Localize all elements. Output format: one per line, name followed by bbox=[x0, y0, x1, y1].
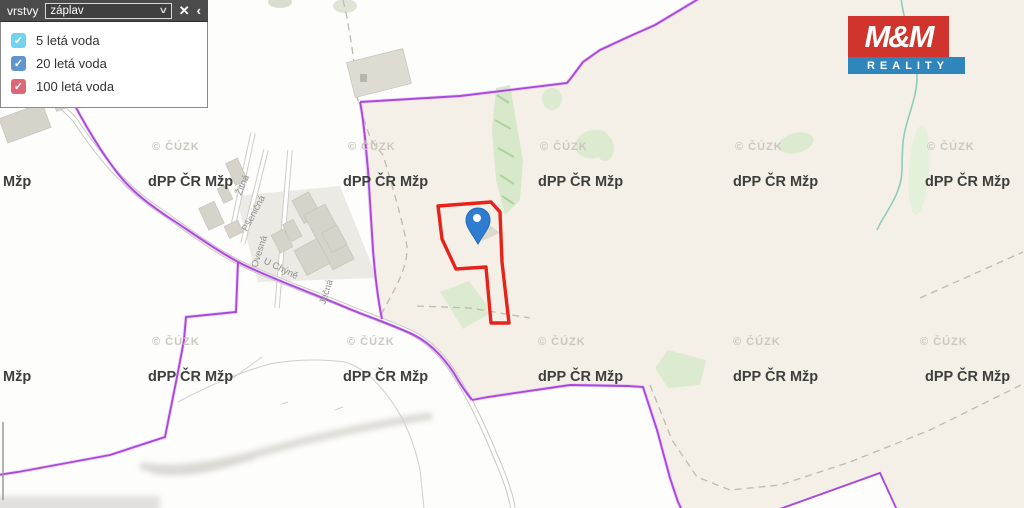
layers-panel-header: vrstvy záplav ∨ ✕ ‹ bbox=[0, 0, 208, 22]
layer-row-20-year: ✓ 20 letá voda bbox=[1, 52, 207, 75]
layer-row-100-year: ✓ 100 letá voda bbox=[1, 75, 207, 98]
copyright-watermark: © ČÚZK bbox=[348, 140, 396, 153]
watermark: dPP ČR Mžp bbox=[148, 367, 233, 385]
layer-label: 100 letá voda bbox=[36, 79, 114, 94]
copyright-watermark: © ČÚZK bbox=[152, 140, 200, 153]
close-button[interactable]: ✕ bbox=[179, 4, 190, 17]
checkbox-5-year[interactable]: ✓ bbox=[11, 33, 26, 48]
watermark: dPP ČR Mžp bbox=[343, 172, 428, 190]
watermark: Mžp bbox=[3, 369, 31, 385]
layers-panel-body: ✓ 5 letá voda ✓ 20 letá voda ✓ 100 letá … bbox=[0, 22, 208, 108]
collapse-button[interactable]: ‹ bbox=[197, 4, 201, 17]
copyright-watermark: © ČÚZK bbox=[927, 140, 975, 153]
watermark: dPP ČR Mžp bbox=[343, 367, 428, 385]
checkbox-100-year[interactable]: ✓ bbox=[11, 79, 26, 94]
copyright-watermark: © ČÚZK bbox=[347, 335, 395, 348]
logo-mm-text: M&M bbox=[848, 16, 949, 57]
watermark: dPP ČR Mžp bbox=[538, 367, 623, 385]
layer-row-5-year: ✓ 5 letá voda bbox=[1, 29, 207, 52]
watermark: Mžp bbox=[3, 174, 31, 190]
watermark: dPP ČR Mžp bbox=[538, 172, 623, 190]
copyright-watermark: © ČÚZK bbox=[733, 335, 781, 348]
watermark: dPP ČR Mžp bbox=[733, 367, 818, 385]
panel-title: vrstvy bbox=[7, 4, 38, 18]
copyright-watermark: © ČÚZK bbox=[920, 335, 968, 348]
copyright-watermark: © ČÚZK bbox=[152, 335, 200, 348]
chevron-down-icon: ∨ bbox=[159, 5, 169, 16]
checkbox-20-year[interactable]: ✓ bbox=[11, 56, 26, 71]
layer-dropdown-value: záplav bbox=[50, 5, 83, 17]
logo-reality-text: REALITY bbox=[848, 57, 965, 74]
mm-reality-logo: M&M REALITY bbox=[848, 16, 965, 74]
watermark: dPP ČR Mžp bbox=[925, 367, 1010, 385]
copyright-watermark: © ČÚZK bbox=[735, 140, 783, 153]
map-app: Žitná Pšeničná Ovesná U Chýně Ječná © ČÚ… bbox=[0, 0, 1024, 508]
layer-dropdown[interactable]: záplav ∨ bbox=[45, 3, 171, 19]
layers-panel: vrstvy záplav ∨ ✕ ‹ ✓ 5 letá voda ✓ 20 l… bbox=[0, 0, 208, 108]
copyright-watermark: © ČÚZK bbox=[540, 140, 588, 153]
watermark: dPP ČR Mžp bbox=[925, 172, 1010, 190]
watermark: dPP ČR Mžp bbox=[148, 172, 233, 190]
copyright-watermark: © ČÚZK bbox=[538, 335, 586, 348]
layer-label: 5 letá voda bbox=[36, 33, 100, 48]
layer-label: 20 letá voda bbox=[36, 56, 107, 71]
watermark: dPP ČR Mžp bbox=[733, 172, 818, 190]
